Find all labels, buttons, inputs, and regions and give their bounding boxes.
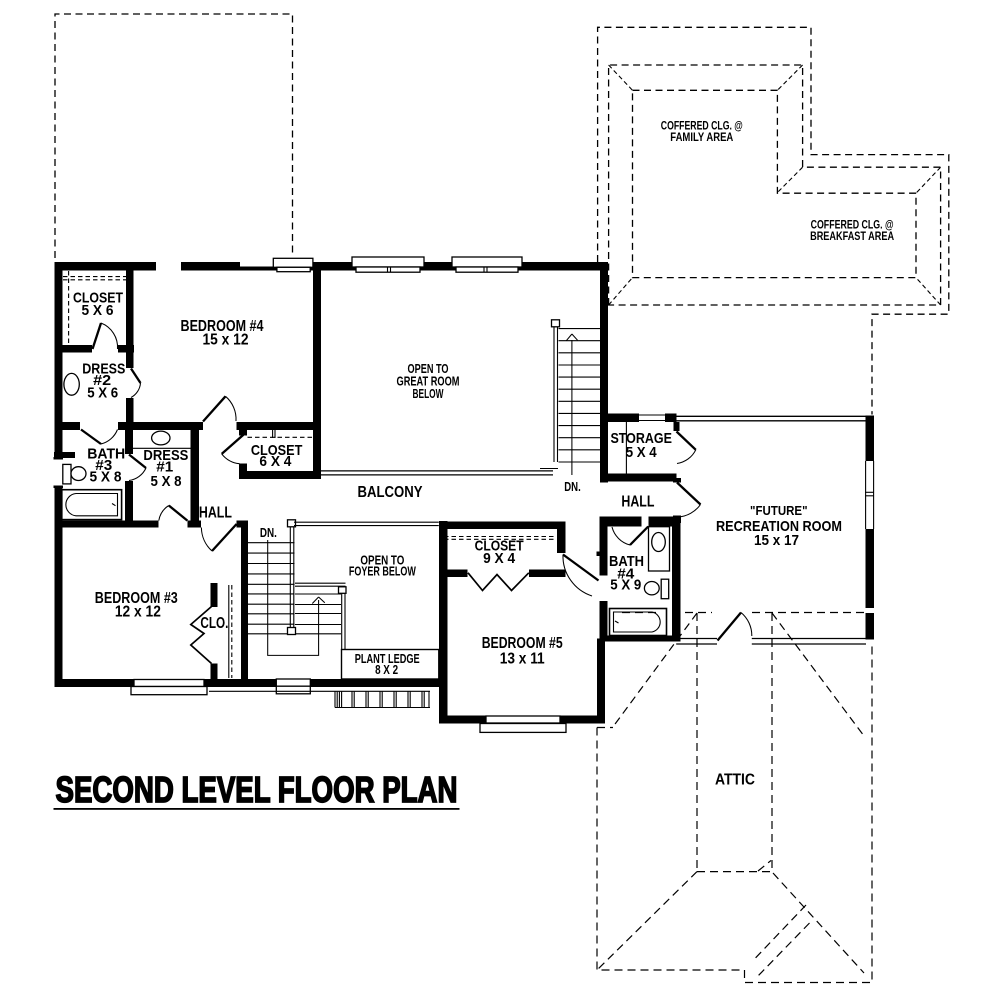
- svg-text:HALL: HALL: [199, 505, 232, 522]
- svg-text:15 x 12: 15 x 12: [203, 332, 249, 349]
- svg-text:6 X 4: 6 X 4: [259, 453, 292, 470]
- svg-text:15 x 17: 15 x 17: [754, 533, 799, 549]
- svg-text:CLO.: CLO.: [200, 615, 228, 632]
- svg-text:5 X 9: 5 X 9: [610, 577, 641, 594]
- svg-text:COFFERED CLG. @: COFFERED CLG. @: [811, 220, 894, 232]
- svg-text:ATTIC: ATTIC: [715, 772, 755, 789]
- svg-text:5 X 8: 5 X 8: [151, 473, 182, 490]
- svg-text:DN.: DN.: [564, 480, 581, 494]
- svg-text:COFFERED CLG. @: COFFERED CLG. @: [661, 121, 743, 133]
- svg-text:BELOW: BELOW: [413, 387, 444, 401]
- svg-text:5 X 4: 5 X 4: [626, 444, 658, 461]
- svg-text:SECOND LEVEL FLOOR PLAN: SECOND LEVEL FLOOR PLAN: [56, 769, 458, 810]
- svg-text:HALL: HALL: [621, 494, 654, 511]
- svg-text:FAMILY AREA: FAMILY AREA: [670, 132, 733, 144]
- svg-text:9 X 4: 9 X 4: [483, 550, 516, 567]
- svg-text:12 x 12: 12 x 12: [115, 603, 161, 620]
- svg-text:13 x 11: 13 x 11: [500, 651, 545, 668]
- svg-text:BEDROOM #5: BEDROOM #5: [482, 635, 563, 652]
- svg-text:5 X 6: 5 X 6: [82, 302, 114, 319]
- svg-text:BREAKFAST AREA: BREAKFAST AREA: [810, 231, 894, 243]
- svg-text:"FUTURE": "FUTURE": [750, 504, 808, 518]
- svg-text:DN.: DN.: [260, 526, 277, 540]
- svg-text:8 X 2: 8 X 2: [375, 662, 398, 677]
- svg-text:5 X 6: 5 X 6: [87, 385, 118, 402]
- svg-text:BALCONY: BALCONY: [358, 484, 423, 501]
- svg-text:FOYER BELOW: FOYER BELOW: [349, 564, 417, 579]
- svg-text:5 X 8: 5 X 8: [90, 469, 122, 486]
